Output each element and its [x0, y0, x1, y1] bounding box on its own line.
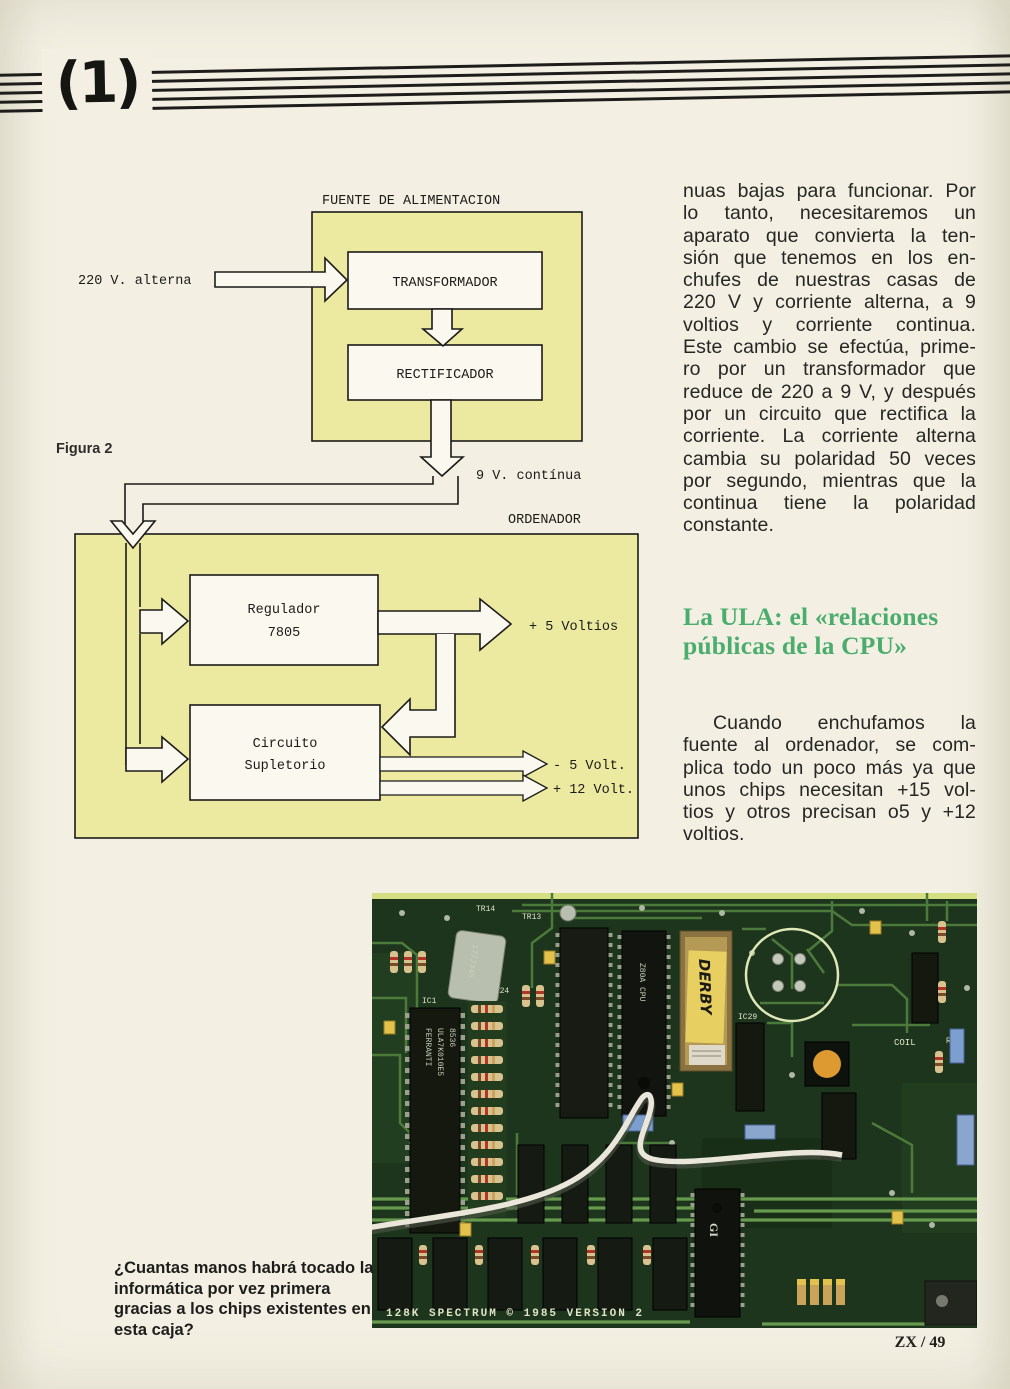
supplementary-box: [190, 705, 380, 800]
ula-chip: FERRANTI ULA7K010E5 8536: [408, 1008, 462, 1233]
dc-output-label: 9 V. contínua: [476, 469, 581, 484]
body-line: sión que tenemos en los en-: [683, 247, 976, 269]
body-line: Cuando enchufamos la: [683, 712, 976, 734]
eprom-derby: DERBY: [680, 931, 732, 1071]
body-line: aparato que convierta la ten-: [683, 225, 976, 247]
svg-text:IC29: IC29: [738, 1013, 757, 1022]
ac-input-label: 220 V. alterna: [78, 274, 191, 289]
body-line: nuas bajas para funcionar. Por: [683, 180, 976, 202]
svg-text:TR14: TR14: [476, 905, 495, 914]
svg-text:FERRANTI: FERRANTI: [423, 1028, 432, 1066]
plus5-label: + 5 Voltios: [529, 620, 618, 635]
svg-text:COIL: COIL: [894, 1038, 916, 1048]
caption-line: informática por vez primera: [114, 1279, 376, 1300]
ac-input-arrow: [215, 258, 347, 301]
photo-caption: ¿Cuantas manos habrá tocado la informáti…: [114, 1258, 376, 1340]
page-footer: ZX / 49: [860, 1334, 980, 1352]
computer-title: ORDENADOR: [508, 513, 581, 528]
gi-chip: GI: [693, 1189, 742, 1317]
regulator-label-1: Regulador: [248, 603, 321, 618]
svg-text:TR13: TR13: [522, 913, 541, 922]
section-heading-line: públicas de la CPU»: [683, 631, 976, 660]
svg-text:IC1: IC1: [422, 997, 437, 1006]
body-line: unos chips necesitan +15 vol-: [683, 779, 976, 801]
rom-chip: [558, 928, 610, 1118]
caption-line: gracias a los chips existentes en: [114, 1299, 376, 1320]
svg-text:Z80A CPU: Z80A CPU: [637, 963, 646, 1002]
caption-line: ¿Cuantas manos habrá tocado la: [114, 1258, 376, 1279]
logic-chip: [822, 1093, 856, 1159]
svg-text:DERBY: DERBY: [695, 959, 715, 1017]
psu-title: FUENTE DE ALIMENTACION: [322, 194, 500, 209]
cpu-chip: Z80A CPU: [620, 931, 668, 1116]
supplementary-label-2: Supletorio: [244, 759, 325, 774]
body-line: cambia su polaridad 50 veces: [683, 448, 976, 470]
body-line: Este cambio se efectúa, prime-: [683, 336, 976, 358]
body-line: por segundo, mientras que la: [683, 470, 976, 492]
pcb-photo: TR14 TR13 IC1 C124 IC29 R60 COIL KEY PAD…: [372, 893, 977, 1328]
rectifier-label: RECTIFICADOR: [396, 368, 493, 383]
body-line: lo tanto, necesitaremos un: [683, 202, 976, 224]
body-line: voltios.: [683, 823, 976, 845]
blue-capacitor: [957, 1115, 974, 1165]
caption-line: esta caja?: [114, 1320, 376, 1341]
logic-chip: [912, 953, 938, 1023]
body-line: por un circuito que rectifica la: [683, 403, 976, 425]
magazine-page: (1) Figura 2 FUENTE DE ALIMENTACION TRAN…: [0, 0, 1010, 1389]
electrolytic-cap: [560, 905, 576, 921]
svg-text:ULA7K010E5: ULA7K010E5: [435, 1028, 444, 1076]
body-line: 220 V y corriente alterna, a 9: [683, 291, 976, 313]
body-line: reduce de 220 a 9 V, y después: [683, 381, 976, 403]
svg-text:8536: 8536: [447, 1028, 456, 1047]
blue-capacitor: [950, 1029, 964, 1063]
section-heading: La ULA: el «relaciones públicas de la CP…: [683, 602, 976, 660]
crystal-can: 1772345: [448, 930, 507, 1004]
logic-chip: [736, 1023, 764, 1111]
body-line: corriente. La corriente alterna: [683, 425, 976, 447]
body-line: tios y otros precisan o5 y +12: [683, 801, 976, 823]
regulator-box: [190, 575, 378, 665]
dc-wire-lower: [143, 476, 458, 522]
transformer-label: TRANSFORMADOR: [392, 276, 497, 291]
plus12-label: + 12 Volt.: [553, 783, 634, 798]
board-silkscreen-title: 128K SPECTRUM © 1985 VERSION 2: [386, 1308, 644, 1320]
body-line: chufes de nuestras casas de: [683, 269, 976, 291]
body-line: continua tiene la polaridad: [683, 492, 976, 514]
supplementary-label-1: Circuito: [253, 737, 318, 752]
section-heading-line: La ULA: el «relaciones: [683, 602, 976, 631]
body-line: voltios y corriente continua.: [683, 314, 976, 336]
blue-capacitor: [745, 1125, 775, 1139]
svg-text:GI: GI: [707, 1223, 721, 1237]
article-paragraph-2: Cuando enchufamos la fuente al ordenador…: [683, 712, 976, 846]
resistor-ladder: [468, 1001, 506, 1217]
trimmer-capacitor: [805, 1042, 849, 1086]
board-edge-highlight: [372, 893, 977, 899]
minus5-label: - 5 Volt.: [553, 759, 626, 774]
keypad-connector: [925, 1281, 977, 1325]
article-paragraph-1: nuas bajas para funcionar. Por lo tanto,…: [683, 180, 976, 537]
dc-wire-upper: [125, 476, 433, 524]
body-line: fuente al ordenador, se com-: [683, 734, 976, 756]
body-line: ro por un transformador que: [683, 358, 976, 380]
regulator-label-2: 7805: [268, 626, 300, 641]
body-line: plica todo un poco más ya que: [683, 757, 976, 779]
body-line: constante.: [683, 514, 976, 536]
